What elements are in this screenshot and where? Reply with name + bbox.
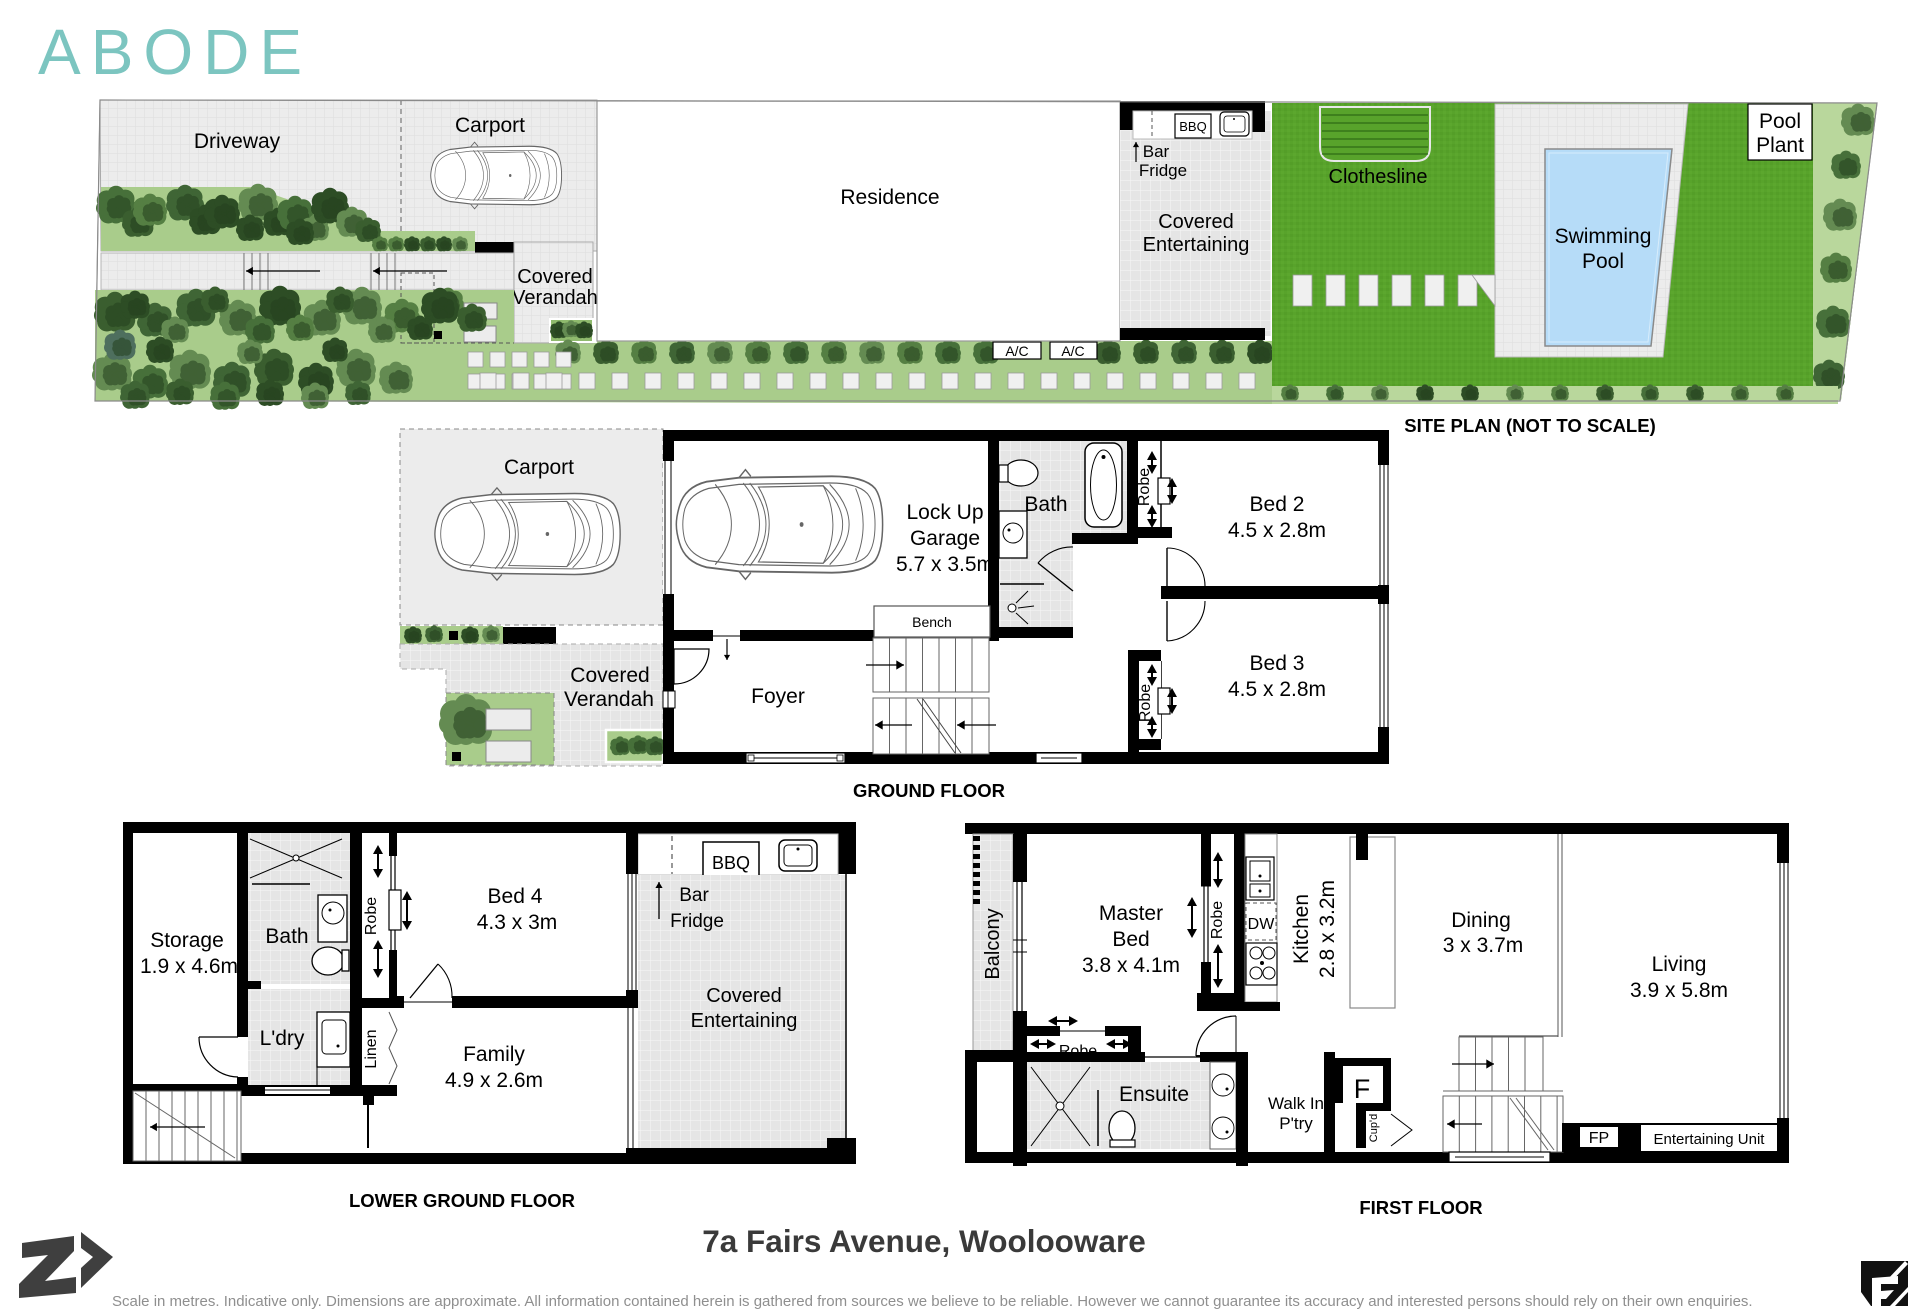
- svg-text:3.8 x 4.1m: 3.8 x 4.1m: [1082, 954, 1180, 977]
- svg-text:Driveway: Driveway: [194, 130, 281, 153]
- svg-text:Robe: Robe: [1137, 684, 1154, 722]
- svg-text:P'try: P'try: [1279, 1114, 1313, 1133]
- svg-text:Family: Family: [463, 1043, 525, 1066]
- svg-text:Covered: Covered: [570, 664, 649, 687]
- svg-text:Covered: Covered: [1158, 211, 1234, 233]
- svg-text:Robe: Robe: [1209, 901, 1226, 939]
- svg-text:Bed 2: Bed 2: [1250, 493, 1305, 516]
- svg-text:Carport: Carport: [504, 456, 574, 479]
- svg-text:Bar: Bar: [1143, 142, 1170, 161]
- svg-text:Master: Master: [1099, 902, 1163, 925]
- svg-text:Entertaining Unit: Entertaining Unit: [1654, 1131, 1766, 1148]
- svg-text:LOWER GROUND FLOOR: LOWER GROUND FLOOR: [349, 1190, 575, 1211]
- svg-text:4.5 x 2.8m: 4.5 x 2.8m: [1228, 678, 1326, 701]
- svg-text:Bath: Bath: [1024, 493, 1067, 516]
- svg-text:Scale in metres. Indicative on: Scale in metres. Indicative only. Dimens…: [112, 1293, 1753, 1310]
- svg-text:Bed: Bed: [1112, 928, 1149, 951]
- svg-text:Bath: Bath: [265, 925, 308, 948]
- svg-text:Covered: Covered: [517, 266, 593, 288]
- svg-text:4.9 x 2.6m: 4.9 x 2.6m: [445, 1069, 543, 1092]
- svg-text:Balcony: Balcony: [982, 908, 1004, 979]
- svg-text:Clothesline: Clothesline: [1329, 166, 1428, 188]
- svg-text:DW: DW: [1248, 916, 1276, 933]
- svg-text:Cup'd: Cup'd: [1368, 1114, 1380, 1142]
- svg-text:Robe: Robe: [363, 897, 380, 935]
- svg-text:1.9 x 4.6m: 1.9 x 4.6m: [140, 955, 238, 978]
- svg-text:Bench: Bench: [912, 614, 952, 630]
- svg-text:Covered: Covered: [706, 985, 782, 1007]
- svg-text:Pool: Pool: [1582, 250, 1624, 273]
- svg-text:2.8 x 3.2m: 2.8 x 3.2m: [1316, 880, 1339, 978]
- svg-text:Bed 3: Bed 3: [1250, 652, 1305, 675]
- svg-text:Residence: Residence: [840, 186, 939, 209]
- svg-text:FIRST FLOOR: FIRST FLOOR: [1359, 1197, 1482, 1218]
- svg-text:Plant: Plant: [1756, 134, 1804, 157]
- svg-text:Fridge: Fridge: [670, 911, 724, 932]
- svg-text:A/C: A/C: [1061, 343, 1084, 359]
- svg-text:Storage: Storage: [150, 929, 224, 952]
- svg-text:BBQ: BBQ: [1179, 119, 1206, 134]
- svg-text:Robe: Robe: [1136, 468, 1153, 506]
- svg-text:5.7 x 3.5m: 5.7 x 3.5m: [896, 553, 994, 576]
- svg-text:Bed 4: Bed 4: [488, 885, 543, 908]
- svg-text:ABODE: ABODE: [38, 16, 312, 88]
- svg-text:Entertaining: Entertaining: [1143, 234, 1250, 256]
- svg-text:Ensuite: Ensuite: [1119, 1083, 1189, 1106]
- svg-text:BBQ: BBQ: [712, 853, 750, 873]
- svg-text:Dining: Dining: [1451, 909, 1511, 932]
- svg-text:Swimming: Swimming: [1555, 225, 1652, 248]
- svg-text:Verandah: Verandah: [564, 688, 654, 711]
- svg-text:Walk In: Walk In: [1268, 1094, 1324, 1113]
- svg-text:Kitchen: Kitchen: [1290, 894, 1313, 964]
- svg-text:FP: FP: [1589, 1130, 1609, 1147]
- svg-text:4.5 x 2.8m: 4.5 x 2.8m: [1228, 519, 1326, 542]
- svg-text:Bar: Bar: [679, 885, 709, 906]
- svg-text:Garage: Garage: [910, 527, 980, 550]
- svg-text:3 x 3.7m: 3 x 3.7m: [1443, 934, 1524, 957]
- svg-text:A/C: A/C: [1005, 343, 1028, 359]
- svg-text:Linen: Linen: [363, 1029, 380, 1068]
- svg-text:3.9 x 5.8m: 3.9 x 5.8m: [1630, 979, 1728, 1002]
- svg-text:SITE PLAN (NOT TO SCALE): SITE PLAN (NOT TO SCALE): [1404, 415, 1655, 436]
- svg-text:7a Fairs Avenue, Woolooware: 7a Fairs Avenue, Woolooware: [702, 1223, 1145, 1259]
- svg-text:Pool: Pool: [1759, 110, 1801, 133]
- svg-text:Verandah: Verandah: [512, 287, 598, 309]
- svg-text:Living: Living: [1652, 953, 1707, 976]
- svg-text:GROUND FLOOR: GROUND FLOOR: [853, 780, 1005, 801]
- svg-text:Entertaining: Entertaining: [691, 1010, 798, 1032]
- svg-text:Foyer: Foyer: [751, 685, 805, 708]
- svg-text:Lock Up: Lock Up: [906, 501, 983, 524]
- svg-text:L'dry: L'dry: [260, 1027, 305, 1050]
- svg-text:Fridge: Fridge: [1139, 161, 1187, 180]
- svg-text:4.3 x 3m: 4.3 x 3m: [477, 911, 558, 934]
- svg-text:F: F: [1354, 1074, 1371, 1104]
- svg-text:Carport: Carport: [455, 114, 525, 137]
